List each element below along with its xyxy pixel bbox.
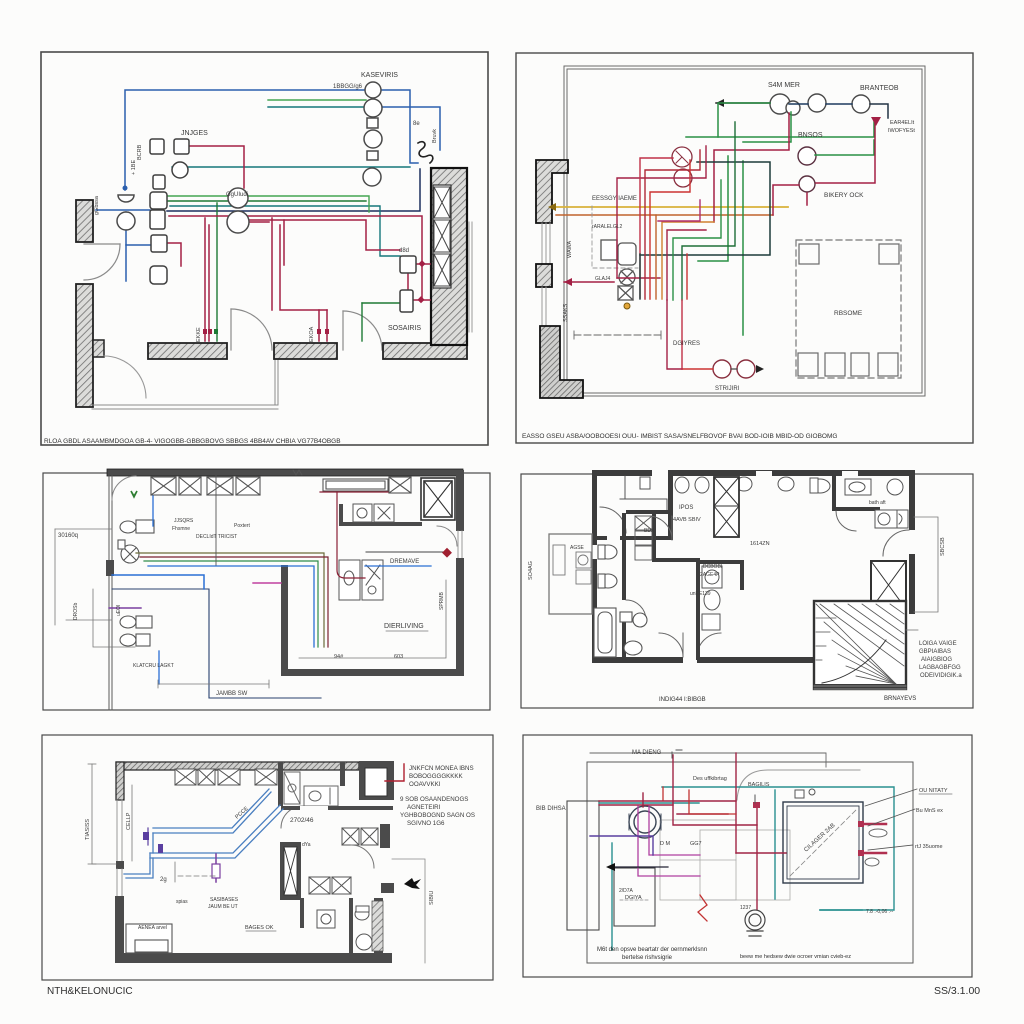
svg-text:2702/46: 2702/46 <box>290 817 314 824</box>
svg-text:BIKERY OCK: BIKERY OCK <box>824 192 864 199</box>
svg-text:BAGILIS: BAGILIS <box>748 782 770 788</box>
svg-text:spias: spias <box>176 899 188 905</box>
svg-text:SBCSB: SBCSB <box>940 537 946 556</box>
svg-text:EKOA: EKOA <box>309 326 315 342</box>
svg-text:EKKE: EKKE <box>196 327 202 342</box>
svg-text:2AGE4P: 2AGE4P <box>700 572 720 578</box>
svg-text:D M: D M <box>660 841 671 847</box>
svg-text:CELLP: CELLP <box>126 812 132 830</box>
svg-text:AGSE: AGSE <box>570 545 585 551</box>
svg-text:8e: 8e <box>413 121 420 127</box>
svg-text:d8d: d8d <box>399 248 409 254</box>
svg-text:CILAGER 2AB: CILAGER 2AB <box>803 823 836 854</box>
svg-text:AIAIGBIOG: AIAIGBIOG <box>921 657 952 663</box>
svg-text:Fhsmne: Fhsmne <box>172 526 190 532</box>
svg-text:603: 603 <box>394 654 403 660</box>
svg-text:AGNETEIRI: AGNETEIRI <box>407 804 441 811</box>
svg-text:9 SOB OSAANDENOGS: 9 SOB OSAANDENOGS <box>400 796 468 803</box>
svg-text:94#: 94# <box>334 654 344 660</box>
svg-text:rtJ 35uome: rtJ 35uome <box>915 844 943 850</box>
svg-text:BOBOGGGGKKKK: BOBOGGGGKKKK <box>409 773 464 780</box>
svg-text:ODEIVIDIGIK.a: ODEIVIDIGIK.a <box>920 673 962 679</box>
svg-text:bertelse rishvsigrie: bertelse rishvsigrie <box>622 955 673 961</box>
svg-text:IWOFYESt: IWOFYESt <box>888 128 915 134</box>
svg-text:SSAKS: SSAKS <box>563 303 569 322</box>
svg-text:SS/3.1.00: SS/3.1.00 <box>934 985 980 997</box>
svg-text:+ 1BE: + 1BE <box>131 160 137 175</box>
svg-text:Bruvk: Bruvk <box>432 129 438 143</box>
svg-text:unEE139: unEE139 <box>690 591 711 597</box>
svg-text:LAGBAGBFGG: LAGBAGBFGG <box>919 665 961 671</box>
svg-text:uEOI: uEOI <box>116 605 122 616</box>
svg-text:SASIBASES: SASIBASES <box>210 897 239 903</box>
svg-text:RLOA GBDL ASAAMBMDGOA GB-4- VI: RLOA GBDL ASAAMBMDGOA GB-4- VIGOGBB-GBBG… <box>44 438 341 445</box>
svg-text:1614ZN: 1614ZN <box>750 541 770 547</box>
svg-text:WAWA: WAWA <box>567 241 573 258</box>
svg-text:BCRB: BCRB <box>137 144 143 160</box>
svg-text:TIASISS: TIASISS <box>85 819 91 840</box>
svg-text:JAMBB SW: JAMBB SW <box>216 691 248 697</box>
svg-text:OU NITATY: OU NITATY <box>919 788 948 794</box>
svg-text:M6t den opsve beartatr der oer: M6t den opsve beartatr der oernmerklsnn <box>597 947 707 953</box>
svg-text:S4M MER: S4M MER <box>768 82 800 89</box>
svg-text:GBPIAIBAS: GBPIAIBAS <box>919 649 951 655</box>
svg-text:SIBIU: SIBIU <box>429 891 435 905</box>
svg-text:KLATCRU LAGKT: KLATCRU LAGKT <box>133 663 174 669</box>
svg-text:MA DIENG: MA DIENG <box>632 750 662 756</box>
svg-text:dYa: dYa <box>302 842 311 848</box>
svg-text:STRIJIRI: STRIJIRI <box>715 386 740 392</box>
svg-text:EASSO GSEU ASBA/OOBOOESI OUU-: EASSO GSEU ASBA/OOBOOESI OUU- IMBIST SAS… <box>522 433 837 440</box>
svg-text:7.8 .-0,06 .--: 7.8 .-0,06 .-- <box>866 909 894 915</box>
svg-text:KASEVIRIS: KASEVIRIS <box>361 72 398 79</box>
svg-text:DREMAVE: DREMAVE <box>390 559 419 565</box>
svg-text:DCBOBI: DCBOBI <box>703 564 722 570</box>
svg-text:BIB DIHSA: BIB DIHSA <box>536 806 566 812</box>
svg-text:BRANTEOB: BRANTEOB <box>860 85 899 92</box>
svg-text:bath aft: bath aft <box>869 500 886 506</box>
svg-text:OOAVVKKI: OOAVVKKI <box>409 781 441 788</box>
svg-text:DIERLIVING: DIERLIVING <box>384 623 424 630</box>
svg-text:Poxtert: Poxtert <box>234 523 250 529</box>
svg-text:GG7: GG7 <box>690 841 702 847</box>
svg-text:SPRMB: SPRMB <box>439 592 445 610</box>
svg-text:1237: 1237 <box>740 905 751 911</box>
svg-text:GgUIudi: GgUIudi <box>226 192 248 198</box>
svg-text:BRNAYEVS: BRNAYEVS <box>884 696 916 702</box>
svg-text:DGIYRES: DGIYRES <box>673 341 700 347</box>
svg-text:gGbssa: gGbssa <box>94 195 100 215</box>
svg-text:Bu MnS ex: Bu MnS ex <box>916 808 943 814</box>
svg-text:1BBGG/g6: 1BBGG/g6 <box>333 84 363 90</box>
svg-text:EESSGY IAEME: EESSGY IAEME <box>592 196 637 202</box>
svg-text:Des uffkibrtag: Des uffkibrtag <box>693 776 727 782</box>
svg-text:EAR4ELIt: EAR4ELIt <box>890 120 915 126</box>
svg-text:JJSQRS: JJSQRS <box>174 518 194 524</box>
svg-text:JAUM BE UT: JAUM BE UT <box>208 904 238 910</box>
svg-text:JNJGES: JNJGES <box>181 130 208 137</box>
svg-text:GLAJ4: GLAJ4 <box>595 276 611 282</box>
svg-text:4AVB SBIV: 4AVB SBIV <box>673 517 701 523</box>
svg-text:AENEA arvel: AENEA arvel <box>138 925 167 931</box>
svg-text:beew me hedsew dwie ocroer vmi: beew me hedsew dwie ocroer vmian cvieb-e… <box>740 954 851 960</box>
svg-text:JNKFCN MONEA IBNS: JNKFCN MONEA IBNS <box>409 765 474 772</box>
svg-text:SOSAIRIS: SOSAIRIS <box>388 325 421 332</box>
svg-text:SGIVNO 1G6: SGIVNO 1G6 <box>407 820 445 827</box>
svg-text:IPOS: IPOS <box>679 505 693 511</box>
svg-text:BAGES OK: BAGES OK <box>245 925 274 931</box>
svg-text:rARALELGL2: rARALELGL2 <box>592 224 623 230</box>
svg-text:LOIGA VAIGE: LOIGA VAIGE <box>919 641 957 647</box>
svg-text:2/D7A: 2/D7A <box>619 888 634 894</box>
svg-text:RBSOME: RBSOME <box>834 310 863 317</box>
svg-text:DROSb: DROSb <box>73 603 79 620</box>
svg-text:SO4AG: SO4AG <box>528 561 534 580</box>
svg-text:2g: 2g <box>160 877 167 883</box>
svg-text:BDX: BDX <box>644 528 655 534</box>
svg-text:NTH&KELONUCIC: NTH&KELONUCIC <box>47 986 133 997</box>
svg-text:BNSOS: BNSOS <box>798 132 823 139</box>
svg-text:INDIG44 I:BIBGB: INDIG44 I:BIBGB <box>659 697 706 703</box>
svg-text:30160q: 30160q <box>58 533 78 539</box>
svg-text:YGHBOBOGND SAGN OS: YGHBOBOGND SAGN OS <box>400 812 475 819</box>
svg-text:DECLIdT TRICIST: DECLIdT TRICIST <box>196 534 237 540</box>
